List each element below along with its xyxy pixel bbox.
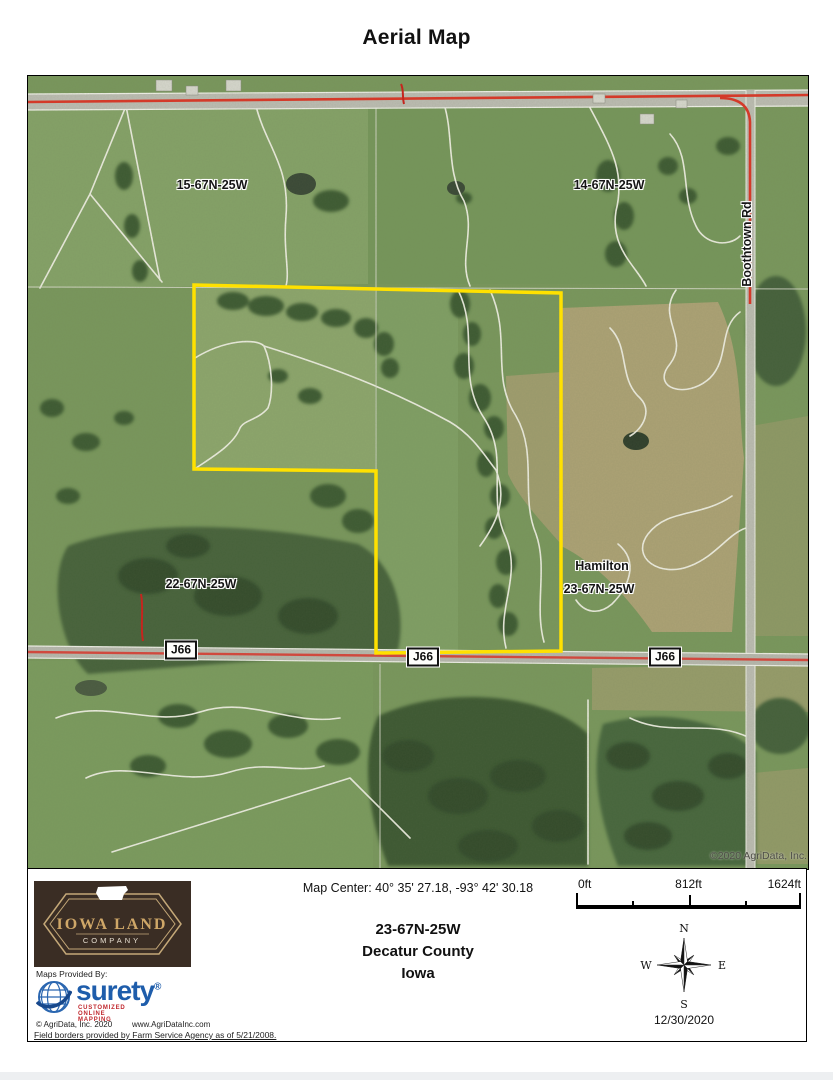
scale-start-label: 0ft xyxy=(578,877,591,891)
field-borders-note: Field borders provided by Farm Service A… xyxy=(34,1030,276,1040)
town-label-hamilton: Hamilton xyxy=(575,559,628,573)
page-title: Aerial Map xyxy=(0,26,833,50)
iowa-land-company-logo: IOWA LAND COMPANY xyxy=(34,881,191,967)
scale-mid-label: 812ft xyxy=(675,877,702,891)
road-shield-j66-center: J66 xyxy=(407,648,439,667)
road-shield-j66-west: J66 xyxy=(165,641,197,660)
compass-north-label: N xyxy=(679,922,689,935)
scale-bar-rule xyxy=(576,893,801,909)
section-label-14-67n-25w: 14-67N-25W xyxy=(574,178,645,192)
map-center-coordinates: Map Center: 40° 35' 27.18, -93° 42' 30.1… xyxy=(198,881,638,895)
aerial-imagery xyxy=(28,76,808,869)
map-date: 12/30/2020 xyxy=(634,1013,734,1027)
compass-south-label: S xyxy=(680,998,688,1011)
state-label: Iowa xyxy=(278,963,558,985)
scale-bar: 0ft 812ft 1624ft xyxy=(576,877,801,913)
scale-end-label: 1624ft xyxy=(768,877,801,891)
info-panel: Map Center: 40° 35' 27.18, -93° 42' 30.1… xyxy=(27,868,807,1042)
compass-rose-icon: N E S W xyxy=(634,915,734,1015)
section-label-23-67n-25w: 23-67N-25W xyxy=(564,582,635,596)
aerial-map-page: Aerial Map xyxy=(0,0,833,1080)
surety-logo: surety® CUSTOMIZED ONLINE MAPPING xyxy=(36,979,72,1019)
agridata-copyright: © AgriData, Inc. 2020 xyxy=(36,1020,112,1029)
viewer-bottom-strip xyxy=(0,1072,833,1080)
agridata-website-link[interactable]: www.AgriDataInc.com xyxy=(132,1020,210,1029)
logo-company-text: COMPANY xyxy=(83,936,141,945)
compass-west-label: W xyxy=(640,959,652,972)
globe-icon xyxy=(36,979,72,1015)
aerial-map: 15-67N-25W 14-67N-25W 22-67N-25W Hamilto… xyxy=(27,75,809,870)
logo-name-text: IOWA LAND xyxy=(57,916,168,933)
section-label-15-67n-25w: 15-67N-25W xyxy=(177,178,248,192)
registered-mark: ® xyxy=(154,982,160,993)
road-label-boothtown-rd: Boothtown Rd xyxy=(740,201,754,286)
compass-east-label: E xyxy=(718,959,726,972)
road-shield-j66-east: J66 xyxy=(649,648,681,667)
map-copyright-watermark: ©2020 AgriData, Inc. xyxy=(710,850,807,862)
location-block: 23-67N-25W Decatur County Iowa xyxy=(278,919,558,985)
township-label: 23-67N-25W xyxy=(278,919,558,941)
county-label: Decatur County xyxy=(278,941,558,963)
surety-wordmark: surety® xyxy=(76,975,160,1007)
section-label-22-67n-25w: 22-67N-25W xyxy=(166,577,237,591)
